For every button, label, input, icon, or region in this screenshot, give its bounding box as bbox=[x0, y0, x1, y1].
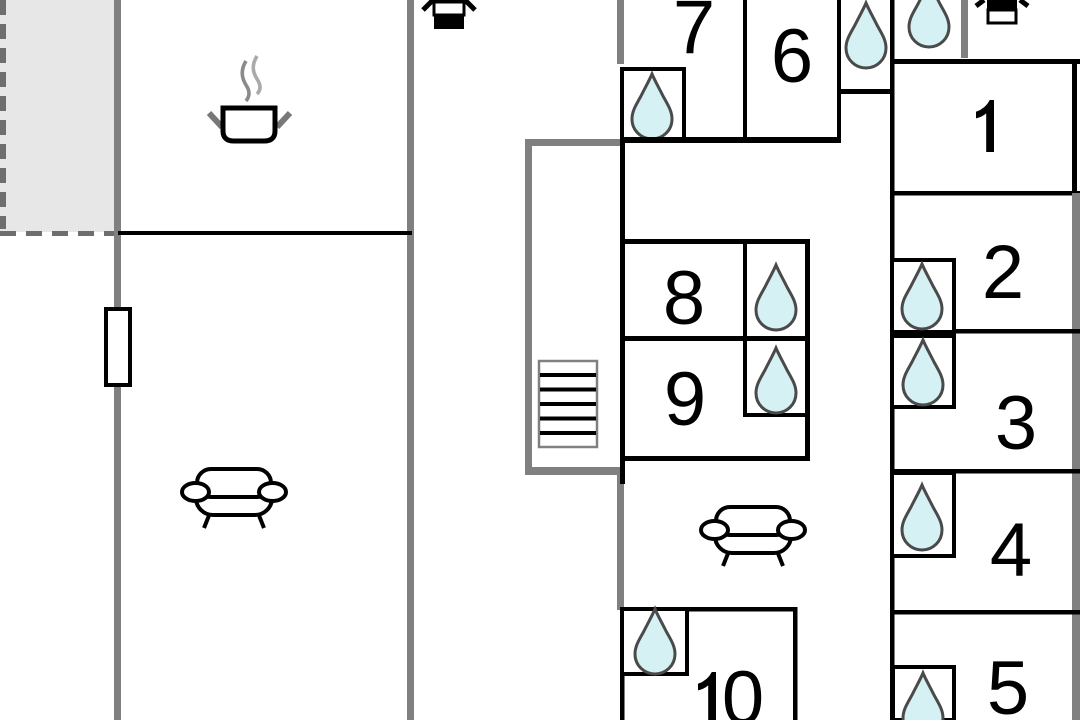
svg-text:0: 0 bbox=[722, 656, 764, 720]
svg-text:9: 9 bbox=[664, 357, 706, 442]
svg-text:2: 2 bbox=[982, 230, 1024, 315]
svg-text:4: 4 bbox=[990, 508, 1032, 593]
svg-text:7: 7 bbox=[673, 0, 715, 70]
svg-text:5: 5 bbox=[987, 646, 1029, 720]
svg-text:6: 6 bbox=[771, 14, 813, 99]
svg-text:8: 8 bbox=[663, 256, 705, 341]
svg-text:3: 3 bbox=[995, 381, 1037, 466]
